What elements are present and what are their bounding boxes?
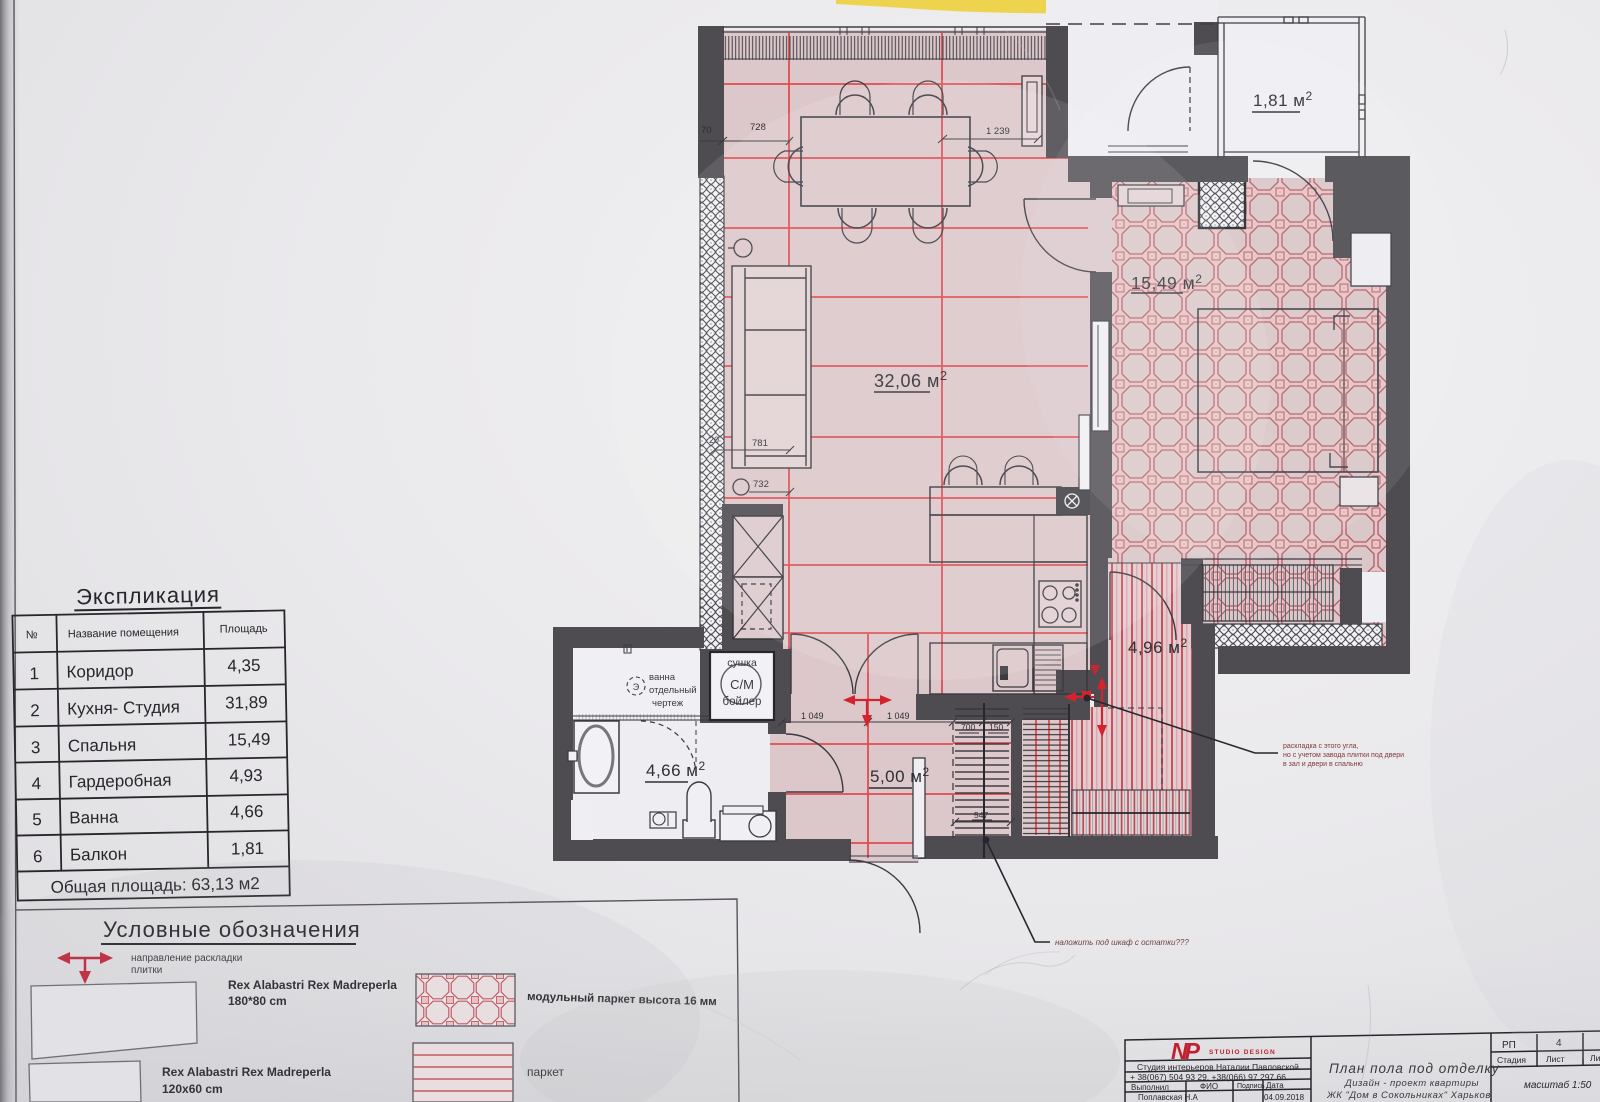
svg-text:раскладка с этого угла,: раскладка с этого угла, (1283, 743, 1359, 750)
svg-text:ФИО: ФИО (1200, 1082, 1218, 1091)
svg-text:4,66: 4,66 (230, 802, 263, 822)
svg-text:5,00 м2: 5,00 м2 (870, 765, 930, 786)
svg-text:4,66 м2: 4,66 м2 (646, 759, 706, 780)
svg-text:Кухня- Студия: Кухня- Студия (67, 697, 180, 718)
svg-text:Поплавская Н.А: Поплавская Н.А (1138, 1093, 1198, 1102)
svg-text:Спальня: Спальня (68, 735, 137, 755)
svg-text:04.09.2018: 04.09.2018 (1264, 1093, 1305, 1102)
svg-text:сушка: сушка (727, 657, 757, 669)
svg-text:Коридор: Коридор (66, 661, 133, 681)
svg-text:6: 6 (33, 847, 43, 866)
svg-text:Дизайн - проект квартиры: Дизайн - проект квартиры (1344, 1078, 1479, 1089)
svg-text:4,96 м2: 4,96 м2 (1128, 636, 1188, 657)
svg-text:4: 4 (31, 774, 41, 793)
svg-text:1: 1 (29, 664, 39, 683)
svg-text:Площадь: Площадь (220, 623, 268, 636)
svg-text:ванна: ванна (649, 672, 676, 683)
svg-text:STUDIO DESIGN: STUDIO DESIGN (1209, 1049, 1276, 1056)
svg-text:Название помещения: Название помещения (68, 626, 179, 640)
svg-text:№: № (26, 629, 38, 641)
svg-text:Стадия: Стадия (1497, 1055, 1526, 1065)
svg-text:700: 700 (961, 722, 975, 732)
svg-text:NP: NP (1171, 1038, 1201, 1064)
svg-text:чертеж: чертеж (652, 698, 684, 709)
svg-text:РП: РП (1502, 1040, 1516, 1051)
svg-text:наложить под шкаф с остатки???: наложить под шкаф с остатки??? (1055, 938, 1189, 947)
svg-text:31,89: 31,89 (225, 693, 268, 713)
svg-text:бойлер: бойлер (723, 696, 762, 708)
svg-text:4,35: 4,35 (227, 656, 260, 676)
svg-text:4,93: 4,93 (229, 766, 262, 786)
svg-text:150: 150 (989, 722, 1003, 732)
svg-text:Подпись: Подпись (1237, 1083, 1265, 1090)
svg-text:Э: Э (633, 682, 640, 692)
svg-text:Балкон: Балкон (70, 844, 127, 864)
svg-text:Экспликация: Экспликация (76, 582, 220, 610)
svg-text:15,49: 15,49 (228, 730, 271, 750)
svg-text:масштаб 1:50: масштаб 1:50 (1524, 1079, 1592, 1091)
svg-text:1,81: 1,81 (231, 839, 264, 859)
svg-text:547: 547 (974, 810, 988, 820)
svg-text:отдельный: отдельный (649, 685, 697, 696)
svg-text:С/М: С/М (730, 677, 754, 692)
svg-text:2: 2 (30, 701, 40, 720)
svg-text:5: 5 (32, 810, 42, 829)
svg-text:3: 3 (31, 738, 41, 757)
svg-text:Ванна: Ванна (69, 808, 119, 828)
svg-text:1 049: 1 049 (887, 711, 910, 721)
svg-text:но с учетом завода плитки под: но с учетом завода плитки под двери (1283, 752, 1404, 759)
svg-text:Гардеробная: Гардеробная (68, 771, 171, 792)
svg-text:Выполнил: Выполнил (1131, 1083, 1169, 1092)
svg-text:Студия интерьеров Наталии Павл: Студия интерьеров Наталии Павловской (1137, 1062, 1299, 1072)
svg-text:+ 38(067) 504 93 29, +38(066): + 38(067) 504 93 29, +38(066) 97 297 66 (1130, 1072, 1286, 1082)
svg-text:План пола под отделку: План пола под отделку (1329, 1061, 1500, 1076)
svg-text:70: 70 (701, 125, 712, 136)
svg-text:ЖК "Дом в Сокольниках" Харьков: ЖК "Дом в Сокольниках" Харьков (1326, 1090, 1491, 1101)
svg-text:1 049: 1 049 (801, 711, 824, 721)
svg-text:в зал и двери в спальню: в зал и двери в спальню (1283, 761, 1363, 768)
svg-text:Дата: Дата (1266, 1081, 1284, 1090)
